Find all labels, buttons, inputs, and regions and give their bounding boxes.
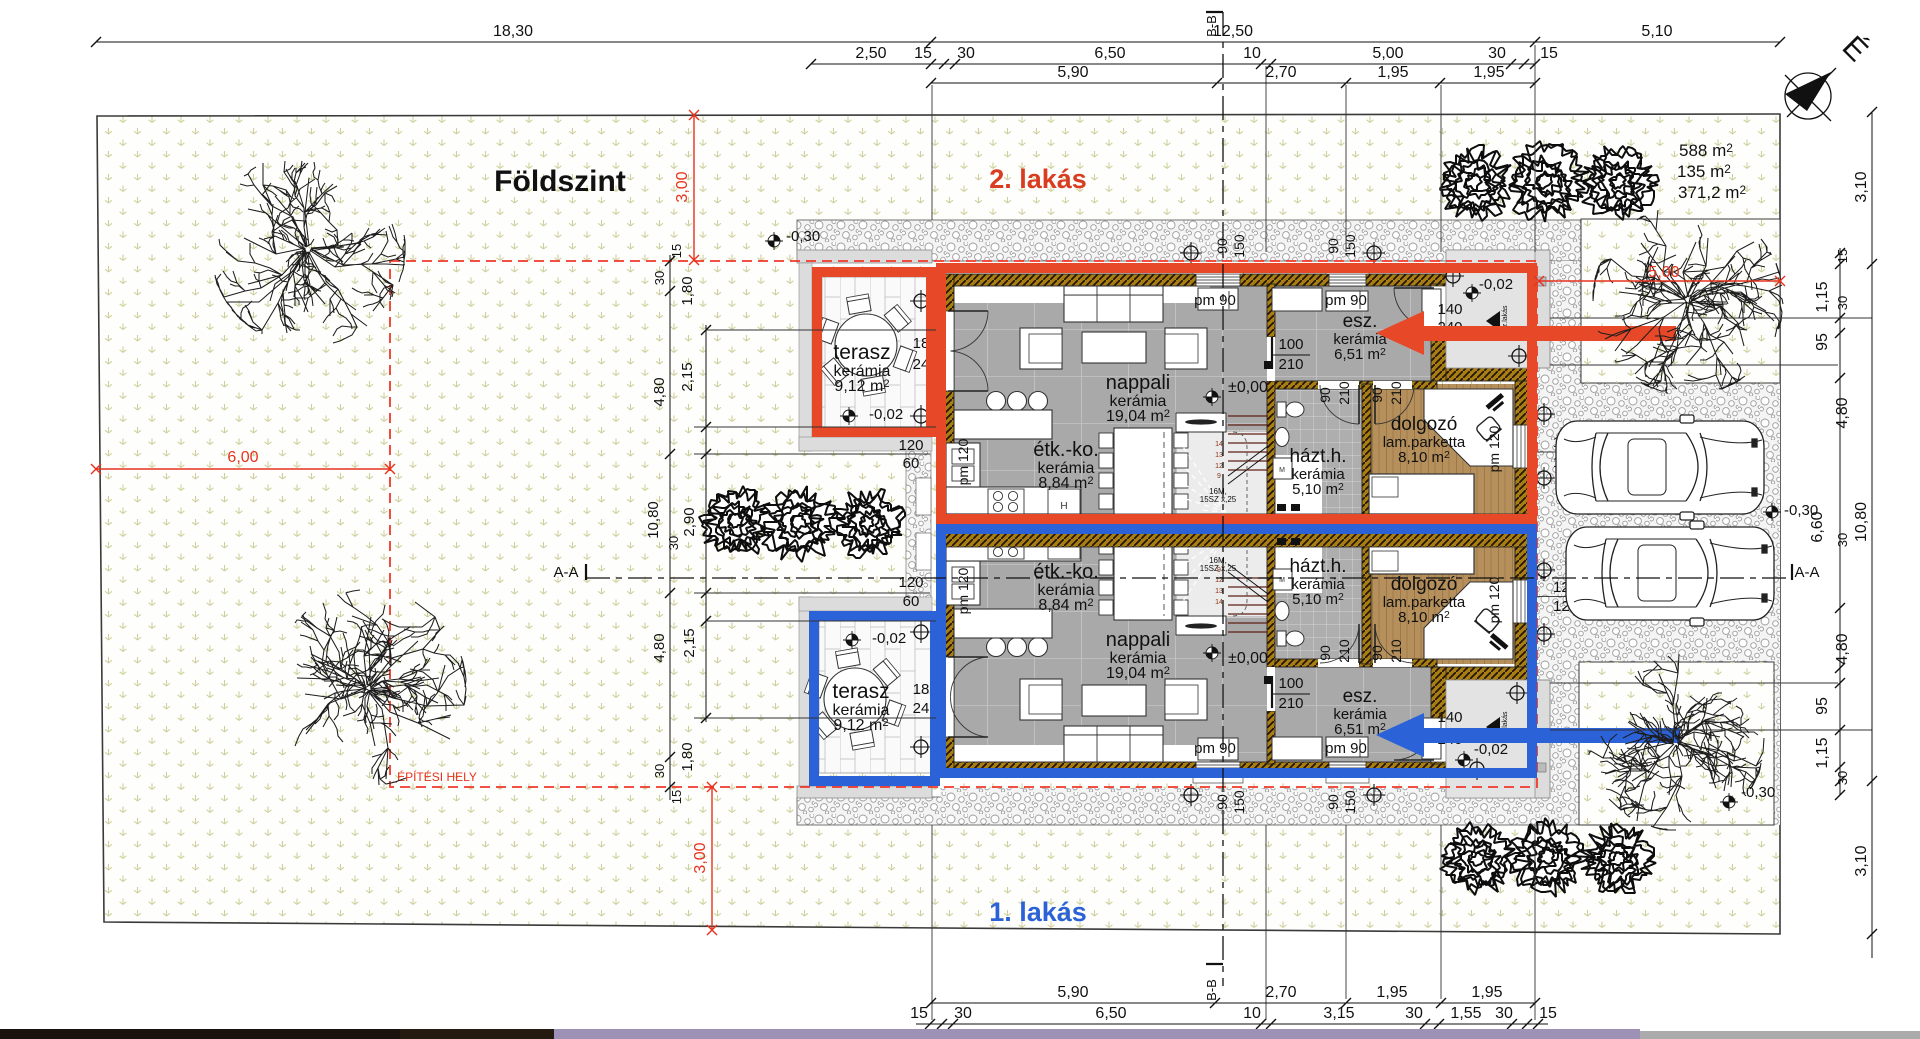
svg-text:30: 30 bbox=[652, 271, 667, 285]
svg-text:1. lakás: 1. lakás bbox=[989, 897, 1087, 927]
svg-text:210: 210 bbox=[1388, 639, 1404, 663]
svg-text:terasz: terasz bbox=[832, 680, 889, 703]
svg-text:6,50: 6,50 bbox=[1094, 45, 1125, 62]
svg-text:210: 210 bbox=[1336, 381, 1352, 405]
svg-text:esz.: esz. bbox=[1343, 311, 1378, 332]
svg-text:terasz: terasz bbox=[833, 341, 890, 364]
svg-text:30: 30 bbox=[1835, 771, 1850, 785]
svg-text:4,80: 4,80 bbox=[1834, 397, 1851, 428]
svg-text:5,10 m2: 5,10 m2 bbox=[1292, 591, 1344, 608]
svg-text:30: 30 bbox=[1405, 1005, 1423, 1022]
svg-text:pm 90: pm 90 bbox=[1194, 740, 1236, 757]
svg-text:90: 90 bbox=[1317, 387, 1333, 403]
svg-text:9: 9 bbox=[1217, 567, 1221, 574]
svg-text:pm 120: pm 120 bbox=[1486, 576, 1502, 623]
svg-text:150: 150 bbox=[1231, 234, 1247, 258]
svg-text:1,55: 1,55 bbox=[1450, 1005, 1481, 1022]
svg-text:210: 210 bbox=[1336, 639, 1352, 663]
svg-text:-0,30: -0,30 bbox=[1741, 784, 1775, 801]
svg-text:8,84 m2: 8,84 m2 bbox=[1038, 597, 1093, 614]
svg-text:5,00: 5,00 bbox=[1648, 264, 1679, 281]
svg-text:ÉPÍTÉSI HELY: ÉPÍTÉSI HELY bbox=[397, 769, 477, 784]
svg-text:30: 30 bbox=[1835, 533, 1850, 547]
svg-text:14: 14 bbox=[1215, 441, 1223, 448]
svg-text:95: 95 bbox=[1814, 333, 1831, 351]
svg-text:1,80: 1,80 bbox=[679, 276, 696, 305]
svg-text:140: 140 bbox=[1437, 301, 1462, 318]
svg-text:nappali: nappali bbox=[1106, 372, 1171, 394]
svg-text:2,90: 2,90 bbox=[681, 507, 698, 536]
svg-text:15: 15 bbox=[910, 1005, 928, 1022]
svg-text:30: 30 bbox=[666, 536, 681, 550]
svg-text:30: 30 bbox=[1495, 1005, 1513, 1022]
svg-text:3,00: 3,00 bbox=[692, 842, 709, 873]
svg-text:9,12 m2: 9,12 m2 bbox=[833, 717, 888, 734]
svg-text:150: 150 bbox=[1342, 234, 1358, 258]
svg-text:2,70: 2,70 bbox=[1265, 984, 1296, 1001]
svg-text:1,15: 1,15 bbox=[1814, 737, 1831, 768]
svg-text:15: 15 bbox=[1835, 249, 1850, 263]
svg-text:150: 150 bbox=[1231, 790, 1247, 814]
svg-text:6,51 m2: 6,51 m2 bbox=[1334, 346, 1386, 363]
svg-text:15: 15 bbox=[1539, 1005, 1557, 1022]
svg-text:210: 210 bbox=[1278, 356, 1303, 373]
svg-text:15: 15 bbox=[669, 244, 684, 258]
svg-text:60: 60 bbox=[903, 593, 920, 610]
svg-text:10: 10 bbox=[1243, 1005, 1261, 1022]
svg-text:étk.-ko.: étk.-ko. bbox=[1033, 561, 1099, 583]
svg-text:esz.: esz. bbox=[1343, 686, 1378, 707]
svg-text:18,30: 18,30 bbox=[493, 23, 533, 40]
svg-text:12,50: 12,50 bbox=[1213, 23, 1253, 40]
svg-text:pm 90: pm 90 bbox=[1325, 740, 1367, 757]
svg-text:1,80: 1,80 bbox=[679, 742, 696, 771]
svg-text:házt.h.: házt.h. bbox=[1289, 446, 1346, 467]
svg-text:6,00: 6,00 bbox=[227, 449, 258, 466]
svg-text:15: 15 bbox=[1540, 45, 1558, 62]
svg-text:5,10: 5,10 bbox=[1641, 23, 1672, 40]
svg-text:4,80: 4,80 bbox=[651, 377, 668, 406]
svg-text:8,10 m2: 8,10 m2 bbox=[1398, 609, 1450, 626]
svg-text:pm 120: pm 120 bbox=[1486, 425, 1502, 472]
svg-text:90: 90 bbox=[1317, 645, 1333, 661]
svg-text:M: M bbox=[1279, 467, 1285, 474]
svg-text:4,80: 4,80 bbox=[1834, 633, 1851, 664]
svg-text:Földszint: Földszint bbox=[494, 165, 626, 198]
svg-text:2,15: 2,15 bbox=[679, 362, 696, 391]
svg-text:pm 120: pm 120 bbox=[955, 567, 971, 614]
svg-text:dolgozó: dolgozó bbox=[1391, 414, 1458, 435]
svg-text:8,10 m2: 8,10 m2 bbox=[1398, 449, 1450, 466]
svg-text:30: 30 bbox=[957, 45, 975, 62]
svg-text:dolgozó: dolgozó bbox=[1391, 574, 1458, 595]
svg-text:A-A: A-A bbox=[553, 564, 578, 581]
svg-text:13: 13 bbox=[1215, 452, 1223, 459]
svg-text:100: 100 bbox=[1278, 675, 1303, 692]
svg-text:30: 30 bbox=[1488, 45, 1506, 62]
svg-text:120: 120 bbox=[898, 574, 923, 591]
svg-text:-0,30: -0,30 bbox=[1784, 502, 1818, 519]
svg-text:2. lakás: 2. lakás bbox=[989, 164, 1087, 194]
svg-text:6,50: 6,50 bbox=[1095, 1005, 1126, 1022]
svg-text:2,15: 2,15 bbox=[681, 628, 698, 657]
svg-text:588 m2: 588 m2 bbox=[1679, 141, 1733, 160]
svg-text:1,95: 1,95 bbox=[1473, 64, 1504, 81]
svg-text:10: 10 bbox=[1243, 45, 1261, 62]
svg-text:-0,02: -0,02 bbox=[872, 630, 906, 647]
svg-text:18: 18 bbox=[913, 681, 930, 698]
svg-text:-0,02: -0,02 bbox=[1479, 276, 1513, 293]
svg-text:3,10: 3,10 bbox=[1853, 845, 1870, 876]
svg-text:90: 90 bbox=[1325, 238, 1341, 254]
svg-text:-0,02: -0,02 bbox=[1474, 741, 1508, 758]
svg-text:-0,30: -0,30 bbox=[786, 228, 820, 245]
svg-text:5,90: 5,90 bbox=[1057, 64, 1088, 81]
svg-text:10,80: 10,80 bbox=[1853, 502, 1870, 542]
svg-text:2,50: 2,50 bbox=[855, 45, 886, 62]
svg-text:B-B: B-B bbox=[1204, 979, 1219, 1001]
svg-text:±0,00: ±0,00 bbox=[1228, 650, 1268, 667]
svg-text:1,15: 1,15 bbox=[1814, 281, 1831, 312]
svg-text:210: 210 bbox=[1278, 695, 1303, 712]
svg-text:15: 15 bbox=[669, 790, 684, 804]
svg-text:1,95: 1,95 bbox=[1376, 984, 1407, 1001]
svg-text:3,10: 3,10 bbox=[1853, 171, 1870, 202]
svg-text:120: 120 bbox=[898, 437, 923, 454]
svg-text:±0,00: ±0,00 bbox=[1228, 379, 1268, 396]
svg-text:30: 30 bbox=[652, 764, 667, 778]
svg-text:371,2 m2: 371,2 m2 bbox=[1678, 183, 1746, 202]
svg-text:3,00: 3,00 bbox=[674, 171, 691, 202]
svg-text:13: 13 bbox=[1215, 588, 1223, 595]
svg-text:5,00: 5,00 bbox=[1372, 45, 1403, 62]
svg-text:9,12 m2: 9,12 m2 bbox=[834, 378, 889, 395]
svg-text:nappali: nappali bbox=[1106, 629, 1171, 651]
svg-text:30: 30 bbox=[954, 1005, 972, 1022]
svg-text:60: 60 bbox=[903, 455, 920, 472]
svg-text:140: 140 bbox=[1437, 709, 1462, 726]
svg-text:pm 120: pm 120 bbox=[955, 438, 971, 485]
svg-text:150: 150 bbox=[1342, 790, 1358, 814]
svg-text:9: 9 bbox=[1217, 473, 1221, 480]
svg-text:10,80: 10,80 bbox=[645, 501, 662, 539]
svg-text:210: 210 bbox=[1388, 381, 1404, 405]
svg-text:5,90: 5,90 bbox=[1057, 984, 1088, 1001]
svg-text:étk.-ko.: étk.-ko. bbox=[1033, 439, 1099, 461]
svg-text:30: 30 bbox=[1835, 296, 1850, 310]
svg-text:135 m2: 135 m2 bbox=[1677, 162, 1731, 181]
svg-text:90: 90 bbox=[1214, 794, 1230, 810]
svg-text:4,80: 4,80 bbox=[651, 633, 668, 662]
svg-text:8,84 m2: 8,84 m2 bbox=[1038, 475, 1093, 492]
svg-text:2,70: 2,70 bbox=[1265, 64, 1296, 81]
svg-text:90: 90 bbox=[1369, 645, 1385, 661]
svg-text:90: 90 bbox=[1214, 238, 1230, 254]
svg-text:19,04 m2: 19,04 m2 bbox=[1106, 665, 1170, 682]
svg-text:3,15: 3,15 bbox=[1323, 1005, 1354, 1022]
svg-text:-0,02: -0,02 bbox=[869, 406, 903, 423]
svg-text:1,95: 1,95 bbox=[1471, 984, 1502, 1001]
svg-text:14: 14 bbox=[1215, 599, 1223, 606]
svg-text:H: H bbox=[1060, 501, 1067, 512]
svg-text:A-A: A-A bbox=[1794, 564, 1819, 581]
svg-text:90: 90 bbox=[1325, 794, 1341, 810]
svg-text:100: 100 bbox=[1278, 336, 1303, 353]
svg-text:15SZ x,25: 15SZ x,25 bbox=[1200, 495, 1237, 504]
svg-text:90: 90 bbox=[1369, 387, 1385, 403]
svg-text:95: 95 bbox=[1814, 697, 1831, 715]
svg-text:24: 24 bbox=[913, 700, 930, 717]
svg-text:5,10 m2: 5,10 m2 bbox=[1292, 481, 1344, 498]
svg-text:pm 90: pm 90 bbox=[1325, 292, 1367, 309]
svg-text:12: 12 bbox=[1215, 463, 1223, 470]
svg-text:15: 15 bbox=[914, 45, 932, 62]
svg-text:pm 90: pm 90 bbox=[1194, 292, 1236, 309]
svg-text:házt.h.: házt.h. bbox=[1289, 556, 1346, 577]
svg-text:1,95: 1,95 bbox=[1377, 64, 1408, 81]
svg-text:19,04 m2: 19,04 m2 bbox=[1106, 408, 1170, 425]
